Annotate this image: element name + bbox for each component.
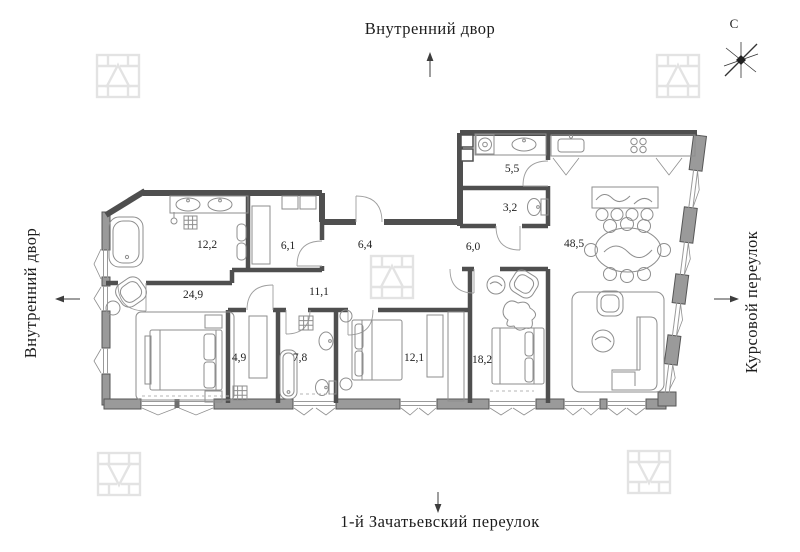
master-bedroom-fixtures (106, 273, 234, 402)
room-label-master-bedroom: 24,9 (183, 289, 203, 301)
armchair (507, 267, 542, 301)
round-table (487, 276, 505, 294)
floor-grate (233, 386, 247, 400)
cabinet-mark (553, 158, 579, 175)
room-label-bathroom-main: 12,2 (197, 239, 217, 251)
watermark-logos (97, 55, 699, 495)
street-label-bottom: 1-й Зачатьевский переулок (340, 512, 540, 531)
laundry-fixtures (461, 134, 546, 161)
bathtub (109, 217, 143, 267)
bathroom-main-fixtures (109, 196, 248, 267)
dressing-fixtures (252, 196, 316, 264)
coffee-table (592, 330, 614, 352)
exterior-wall-lines (106, 133, 697, 226)
floor-plan-page: Внутренний двор Внутренний двор Курсовой… (0, 0, 800, 552)
shower-fitting (171, 212, 197, 229)
wc-door (496, 226, 520, 250)
room-label-bedroom2: 12,1 (404, 352, 424, 364)
double-bed (352, 320, 402, 380)
closet-door (247, 285, 273, 310)
laundry-counter (475, 134, 546, 155)
dressing-door (297, 241, 322, 266)
wardrobe (448, 312, 464, 401)
laundry-door (523, 161, 548, 186)
corner-sofa (612, 317, 657, 390)
room-label-kitchen-living: 48,5 (564, 238, 584, 250)
double-bed (492, 328, 544, 384)
room-label-bathroom2: 7,8 (293, 352, 308, 364)
watermark-logo-icon (371, 256, 413, 298)
kitchen-sink (558, 135, 584, 152)
bedroom3-fixtures (487, 267, 544, 391)
street-label-top: Внутренний двор (365, 19, 496, 38)
wardrobe (249, 316, 267, 378)
watermark-logo-icon (97, 55, 139, 97)
double-sink (170, 196, 248, 213)
cabinet-mark (656, 158, 682, 175)
toilet (528, 199, 549, 216)
kitchen-fixtures (551, 135, 695, 283)
pouf (503, 301, 535, 330)
east-arrowhead-icon (730, 296, 739, 303)
armchair (597, 291, 623, 316)
towel-radiator (237, 224, 246, 260)
kitchen-counter (551, 135, 695, 156)
cabinet (300, 196, 316, 209)
wardrobe (252, 206, 270, 264)
laundry-sink (512, 138, 536, 151)
watermark-logo-icon (657, 55, 699, 97)
room-label-wc: 3,2 (503, 202, 518, 214)
room-label-dressing: 6,1 (281, 240, 296, 252)
washing-machine (476, 135, 494, 154)
double-bed (145, 330, 222, 390)
toilet (316, 380, 337, 396)
cabinet (282, 196, 298, 209)
nightstand (340, 378, 352, 390)
rug (572, 292, 664, 392)
street-label-right: Курсовой переулок (742, 230, 761, 373)
sink (319, 332, 333, 350)
bathroom2-fixtures (280, 316, 336, 399)
dining-table (585, 218, 671, 283)
cooktop (631, 138, 646, 152)
living-fixtures (572, 291, 664, 392)
kitchen-island (592, 187, 658, 221)
floor-plan-drawing: Внутренний двор Внутренний двор Курсовой… (0, 0, 800, 552)
entry-door (356, 196, 382, 222)
room-label-corridor: 11,1 (309, 286, 329, 298)
wardrobe (427, 315, 443, 377)
armchair (112, 273, 150, 310)
shower-grate (299, 316, 313, 330)
west-arrowhead-icon (55, 296, 64, 303)
room-label-hall: 6,0 (466, 241, 481, 253)
watermark-logo-icon (628, 451, 670, 493)
room-label-hallway: 6,4 (358, 239, 373, 251)
compass-north-letter: С (730, 16, 739, 31)
street-label-left: Внутренний двор (21, 228, 40, 359)
north-arrowhead-icon (427, 52, 434, 61)
duct-shaft (461, 149, 473, 161)
nightstand (205, 315, 222, 328)
room-label-closet: 4,9 (232, 352, 247, 364)
watermark-logo-icon (98, 453, 140, 495)
wc-fixtures (528, 199, 549, 216)
duct-shaft (461, 135, 473, 147)
room-label-laundry: 5,5 (505, 163, 520, 175)
room-label-bedroom3: 18,2 (472, 354, 492, 366)
side-table (106, 301, 120, 315)
compass-rose: С (724, 16, 758, 78)
